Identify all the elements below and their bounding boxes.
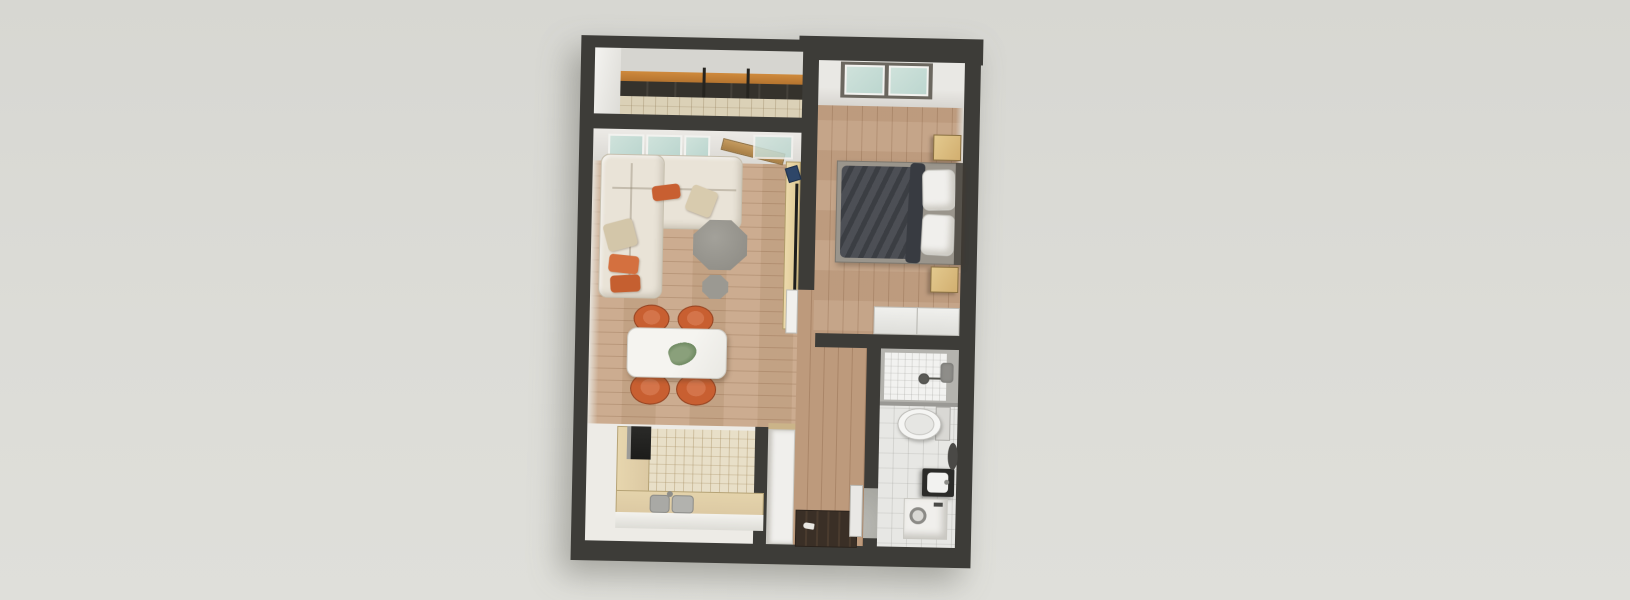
shower-valve <box>940 363 953 383</box>
room-bathroom <box>877 348 959 548</box>
kitchen-mosaic-floor <box>648 429 755 493</box>
room-kitchen <box>585 423 755 543</box>
bedroom-window-pane <box>844 65 885 96</box>
render-canvas <box>0 0 1630 600</box>
coffee-table-small <box>702 275 728 300</box>
kitchen-appliance-handle <box>627 426 632 459</box>
bed-pillow <box>920 214 955 257</box>
shower-arm <box>927 377 941 379</box>
sofa-cushion-orange <box>610 274 641 292</box>
bedroom-window-pane <box>888 66 929 97</box>
room-balcony <box>594 47 803 117</box>
balcony-inner-wall-face <box>594 47 621 114</box>
kitchen-faucet <box>667 491 673 497</box>
sofa-cushion-orange <box>608 253 640 274</box>
kitchen-sink-basin <box>650 495 670 513</box>
round-mirror <box>947 443 958 470</box>
balcony-door-glass <box>753 135 793 160</box>
washing-machine-panel <box>934 503 943 507</box>
balcony-floor <box>620 96 802 118</box>
bedroom-door-leaf <box>785 289 798 333</box>
entry-mat <box>795 510 858 548</box>
wall-bathroom-left-lower <box>863 538 877 546</box>
room-bedroom <box>813 60 965 336</box>
room-living <box>587 128 801 427</box>
nightstand <box>933 134 962 161</box>
kitchen-counter-front <box>615 512 763 531</box>
hallway-tall-cabinet <box>766 429 795 545</box>
floor-plan <box>548 27 983 572</box>
bathroom-door-leaf <box>849 485 863 537</box>
kitchen-sink-basin <box>671 495 693 513</box>
kitchen-appliance-dark <box>630 426 652 459</box>
vanity-faucet <box>944 480 949 485</box>
bed-pillow <box>922 169 956 210</box>
nightstand <box>930 266 959 293</box>
